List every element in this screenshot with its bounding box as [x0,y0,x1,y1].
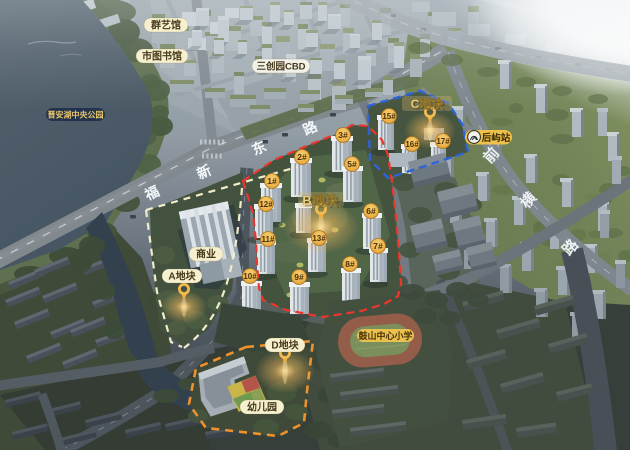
svg-text:商业: 商业 [196,248,216,261]
svg-text:1#: 1# [267,176,277,186]
svg-text:三创园CBD: 三创园CBD [256,61,305,73]
svg-text:13#: 13# [312,234,326,243]
svg-text:幼儿园: 幼儿园 [247,401,277,414]
svg-text:B地块: B地块 [302,193,338,208]
svg-text:群艺馆: 群艺馆 [151,19,181,32]
svg-text:晋安湖中央公园: 晋安湖中央公园 [48,110,104,120]
svg-text:16#: 16# [405,140,419,149]
svg-text:鼓山中心小学: 鼓山中心小学 [358,330,412,341]
svg-text:A地块: A地块 [168,270,196,283]
svg-text:9#: 9# [294,272,304,282]
svg-text:8#: 8# [345,259,355,269]
svg-text:市图书馆: 市图书馆 [142,50,182,63]
svg-text:后屿站: 后屿站 [482,132,511,144]
svg-text:5#: 5# [347,159,357,169]
svg-text:C地块: C地块 [411,96,445,111]
svg-text:11#: 11# [262,235,275,244]
svg-text:7#: 7# [373,241,383,251]
svg-text:2#: 2# [297,152,307,162]
svg-text:17#: 17# [436,137,450,146]
svg-text:3#: 3# [338,130,348,140]
svg-text:15#: 15# [382,112,396,121]
svg-text:10#: 10# [243,272,257,281]
svg-text:D地块: D地块 [271,339,299,352]
svg-text:12#: 12# [259,200,273,209]
svg-text:6#: 6# [366,206,376,216]
